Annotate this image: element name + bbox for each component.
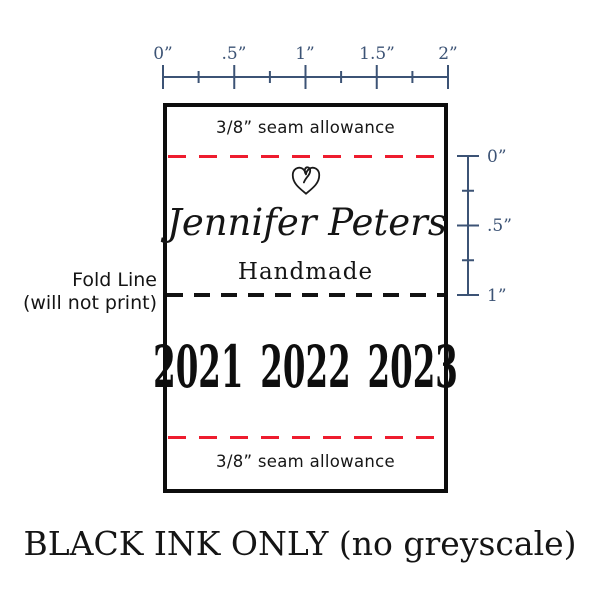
print-instruction: BLACK INK ONLY (no greyscale) (0, 524, 600, 563)
seam-allowance-top: 3/8” seam allowance (167, 118, 444, 137)
year-options: 2021 2022 2023 (228, 333, 383, 401)
fold-line-note-line1: Fold Line (0, 269, 157, 292)
fold-line (167, 293, 444, 297)
fold-line-note: Fold Line (will not print) (0, 269, 157, 315)
vruler-tick-label: 1” (487, 286, 527, 306)
brand-name: Jennifer Peters (167, 201, 444, 244)
year-option: 2023 (368, 333, 458, 401)
seam-allowance-bottom: 3/8” seam allowance (167, 452, 444, 471)
year-option: 2021 (153, 333, 243, 401)
heart-doodle-icon (289, 164, 323, 200)
cut-line-top (168, 155, 443, 158)
year-option: 2022 (260, 333, 350, 401)
cut-line-bottom (168, 436, 443, 439)
fold-line-note-line2: (will not print) (0, 292, 157, 315)
brand-subtitle: Handmade (167, 259, 444, 285)
horizontal-ruler (160, 60, 455, 94)
vruler-tick-label: .5” (487, 216, 527, 236)
vruler-tick-label: 0” (487, 147, 527, 167)
label-artboard: 3/8” seam allowance Jennifer Peters Hand… (163, 103, 448, 493)
vertical-ruler (455, 150, 485, 305)
label-template-preview: 0” .5” 1” 1.5” 2” 0” .5” 1” Fold Line (w… (0, 0, 600, 600)
